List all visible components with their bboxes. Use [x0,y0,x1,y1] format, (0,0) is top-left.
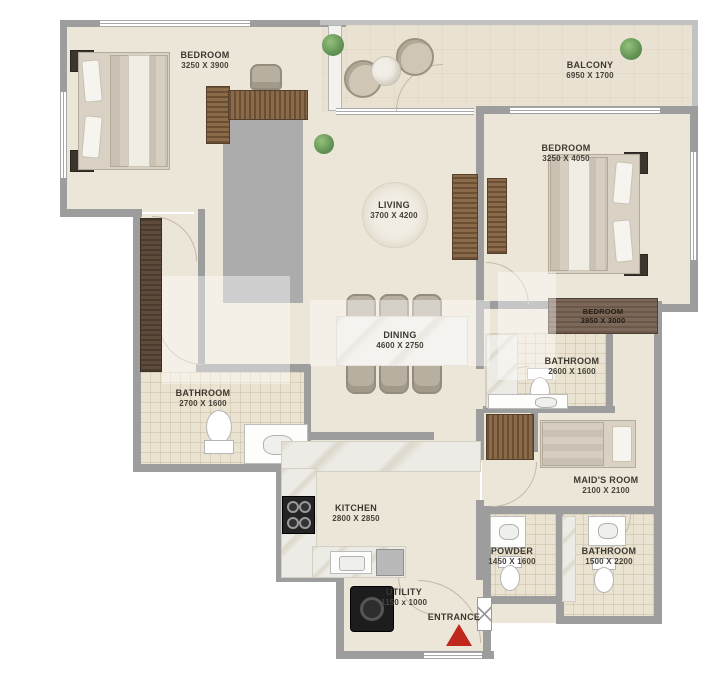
room-label-living: LIVING 3700 X 4200 [370,200,418,221]
wardrobe [206,86,230,144]
toilet-tank [204,440,234,454]
wall [483,596,564,604]
wardrobe-bedroom-3: BEDROOM 3950 X 3000 [548,298,658,334]
room-label-entrance: ENTRANCE [428,612,480,623]
room-label-bathroom-2: BATHROOM 2600 X 1600 [545,356,600,377]
wall [606,330,613,413]
room-dims: 3250 X 4050 [541,154,590,164]
toilet-icon [594,567,614,593]
wall [556,616,662,624]
room-dims: 3950 X 3000 [581,316,626,325]
room-dims: 6950 X 1700 [566,71,614,81]
tall-wardrobe [140,218,162,372]
room-dims: 3700 X 4200 [370,211,418,221]
room-dims: 1150 x 1000 [381,598,427,608]
room-name: DINING [376,330,424,341]
window [60,92,67,178]
room-name: LIVING [370,200,418,211]
room-dims: 2800 X 2850 [332,514,380,524]
room-name: POWDER [488,546,536,557]
sink-basin [499,524,519,540]
room-name: BEDROOM [583,307,624,316]
room-dims: 2600 X 1600 [545,367,600,377]
kitchen-sink [330,551,372,574]
stove-icon [282,496,315,534]
toilet-icon [500,565,520,591]
powder-vanity [490,516,526,548]
wall [60,209,142,217]
window [690,152,698,260]
room-dims: 2700 X 1600 [176,399,231,409]
window [510,107,660,113]
burner [299,517,311,529]
entrance-threshold [424,652,482,659]
room-name: ENTRANCE [428,612,480,623]
wall [654,304,662,624]
room-name: BATHROOM [582,546,637,557]
room-name: BATHROOM [176,388,231,399]
pillow [81,115,103,158]
pillow [612,219,634,262]
room-label-bathroom-1: BATHROOM 2700 X 1600 [176,388,231,409]
blanket [542,422,604,466]
desk-chair [250,64,282,90]
pillow [81,59,103,102]
room-label-maids-room: MAID'S ROOM 2100 X 2100 [574,475,639,496]
room-label-bedroom-1: BEDROOM 3250 X 3900 [180,50,229,71]
room-name: BEDROOM [180,50,229,61]
bed [70,48,172,172]
window [100,20,250,27]
room-name: KITCHEN [332,503,380,514]
wall [133,464,285,472]
appliance [376,549,404,576]
room-label-dining: DINING 4600 X 2750 [376,330,424,351]
wall [483,506,661,514]
room-name: BALCONY [566,60,614,71]
wall [336,574,344,659]
shower-panel [562,516,576,602]
blanket-fold [568,157,590,271]
balcony-wall [692,20,698,112]
room-name: MAID'S ROOM [574,475,639,486]
plant-icon [314,134,334,154]
bed [544,150,646,276]
desk [228,90,308,120]
sink-basin [598,523,618,539]
lounge-chair [396,38,434,76]
floor-plan: BEDROOM 3950 X 3000 [0,0,704,680]
plant-icon [620,38,642,60]
room-dims: 2100 X 2100 [574,486,639,496]
room-label-utility: UTILITY 1150 x 1000 [381,587,427,608]
sink-basin [535,397,557,408]
room-name: BEDROOM [541,143,590,154]
room-label-kitchen: KITCHEN 2800 X 2850 [332,503,380,524]
burner [287,517,299,529]
room-name: BATHROOM [545,356,600,367]
room-dims: 1450 X 1600 [488,557,536,567]
room-name: UTILITY [381,587,427,598]
entrance-arrow-icon [446,624,472,646]
watermark [162,276,290,384]
room-dims: 4600 X 2750 [376,341,424,351]
pillow [612,426,632,462]
wardrobe [487,178,507,254]
balcony-wall [320,20,698,25]
room-label-powder: POWDER 1450 X 1600 [488,546,536,567]
bathroom-vanity [488,394,568,409]
wardrobe [452,174,478,260]
bathroom-vanity [588,516,626,546]
pillow [612,161,634,204]
toilet-icon [206,410,232,444]
room-dims: 3250 X 3900 [180,61,229,71]
blanket-fold [128,55,150,167]
bed [540,420,636,468]
room-dims: 1500 X 2200 [582,557,637,567]
room-label-bedroom-2: BEDROOM 3250 X 4050 [541,143,590,164]
burner [287,501,299,513]
sink-basin [339,556,365,571]
plant-icon [322,34,344,56]
burner [299,501,311,513]
room-label-balcony: BALCONY 6950 X 1700 [566,60,614,81]
room-label-bathroom-3: BATHROOM 1500 X 2200 [582,546,637,567]
coffee-table [371,56,401,86]
wardrobe [486,414,534,460]
